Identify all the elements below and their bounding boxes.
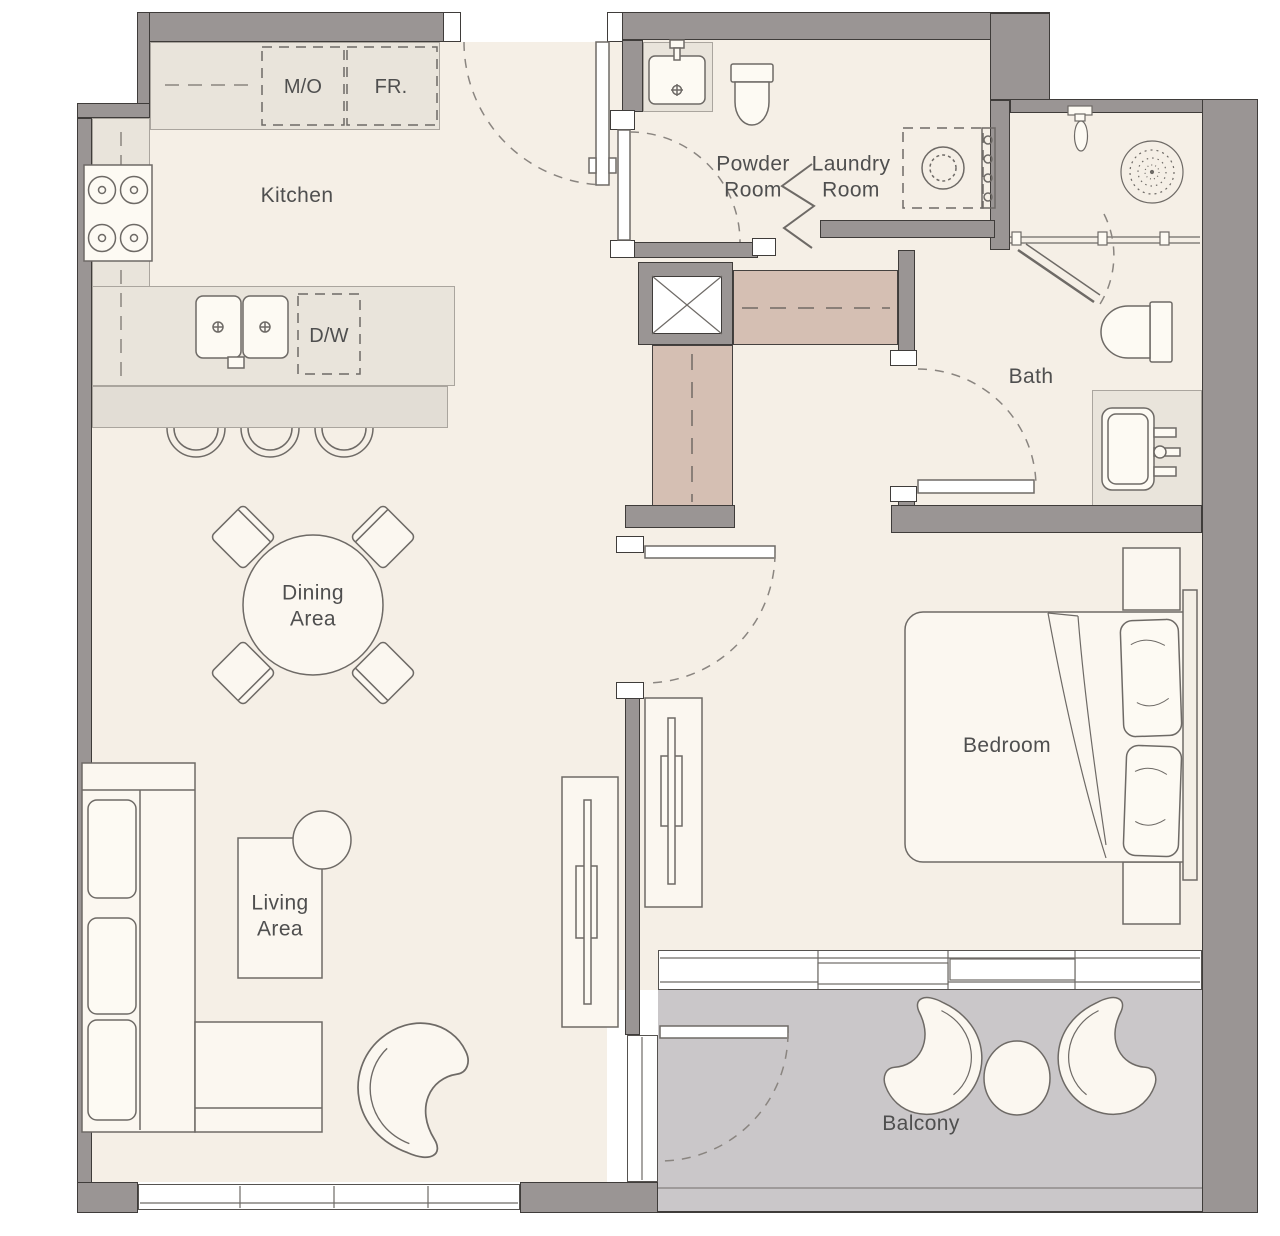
- wall-block-top-right: [990, 13, 1050, 100]
- wall-top-powder-laundry: [607, 12, 1050, 40]
- floor-balcony: [658, 990, 1202, 1213]
- wall-bottom-mid: [520, 1182, 658, 1213]
- jamb-bath-bottom: [890, 486, 917, 502]
- jamb-bath-top: [890, 350, 917, 366]
- wall-bottom-left: [77, 1182, 138, 1213]
- wall-top-kitchen: [137, 12, 455, 42]
- wall-laundry-south: [820, 220, 995, 238]
- label-powder-room: Powder Room: [716, 151, 790, 202]
- kitchen-left-counter: [92, 118, 150, 288]
- window-living-balcony: [627, 1035, 658, 1182]
- duct-shaft-box: [652, 276, 722, 334]
- window-bedroom-balcony: [658, 950, 1202, 990]
- label-bath: Bath: [1009, 364, 1054, 390]
- wall-powder-west: [622, 40, 643, 112]
- jamb-entry-right: [607, 12, 623, 42]
- kitchen-island-counter: [92, 286, 455, 386]
- wall-bath-west-upper: [898, 250, 915, 362]
- label-balcony: Balcony: [882, 1111, 960, 1137]
- jamb-powder-bottom: [610, 240, 635, 258]
- powder-sink-counter: [643, 42, 713, 112]
- label-dishwasher: D/W: [309, 324, 348, 348]
- jamb-bedroom-top: [616, 536, 644, 553]
- label-laundry-room: Laundry Room: [812, 151, 891, 202]
- jamb-bedroom-bottom: [616, 682, 644, 699]
- label-fridge: FR.: [375, 75, 408, 99]
- wall-right: [1202, 99, 1258, 1213]
- kitchen-island-overhang: [92, 386, 448, 428]
- wardrobe-vertical: [652, 345, 733, 512]
- jamb-entry-left: [443, 12, 461, 42]
- wall-closet-south: [625, 505, 735, 528]
- wall-left-step: [77, 103, 150, 118]
- label-microwave: M/O: [284, 75, 322, 99]
- bath-vanity-counter: [1092, 390, 1202, 512]
- jamb-powder-south-end: [752, 238, 776, 256]
- wall-left: [77, 118, 92, 1213]
- wall-bedroom-north: [891, 505, 1202, 533]
- window-living-south: [138, 1184, 520, 1210]
- label-dining-area: Dining Area: [282, 580, 344, 631]
- label-bedroom: Bedroom: [963, 733, 1051, 759]
- floor-plan: Kitchen M/O FR. D/W Powder Room Laundry …: [0, 0, 1280, 1236]
- wardrobe-horizontal: [733, 270, 898, 345]
- wall-tv-partition: [625, 682, 640, 1035]
- label-kitchen: Kitchen: [261, 183, 334, 209]
- jamb-powder-top: [610, 110, 635, 130]
- label-living-area: Living Area: [251, 890, 308, 941]
- floor-main-living: [92, 118, 607, 1182]
